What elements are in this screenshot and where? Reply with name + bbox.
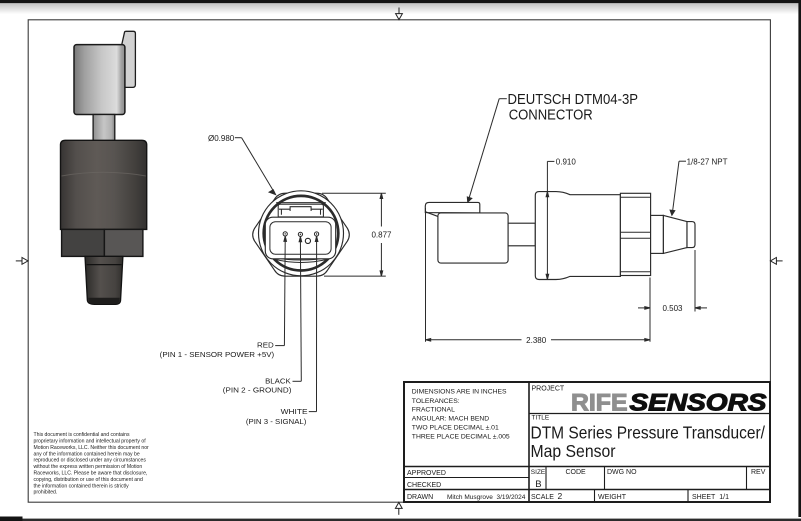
svg-text:SIZE: SIZE bbox=[531, 469, 546, 476]
svg-text:SHEET 1/1: SHEET 1/1 bbox=[692, 494, 729, 501]
svg-text:(PIN 1 - SENSOR POWER +5V): (PIN 1 - SENSOR POWER +5V) bbox=[160, 350, 275, 359]
svg-text:2.380: 2.380 bbox=[526, 336, 547, 345]
svg-text:(PIN 2 - GROUND): (PIN 2 - GROUND) bbox=[223, 386, 292, 395]
svg-text:APPROVED: APPROVED bbox=[407, 470, 446, 477]
svg-text:TITLE: TITLE bbox=[532, 414, 550, 421]
svg-text:WHITE: WHITE bbox=[281, 407, 308, 416]
svg-text:TWO PLACE DECIMAL ±.01: TWO PLACE DECIMAL ±.01 bbox=[412, 425, 499, 432]
svg-text:SENSORS: SENSORS bbox=[630, 390, 768, 417]
svg-text:1/8-27 NPT: 1/8-27 NPT bbox=[687, 157, 728, 166]
svg-text:THREE PLACE DECIMAL ±.005: THREE PLACE DECIMAL ±.005 bbox=[412, 433, 510, 440]
svg-text:RIFE: RIFE bbox=[571, 390, 628, 417]
svg-text:2: 2 bbox=[558, 491, 563, 501]
svg-text:the information contained ther: the information contained therein is str… bbox=[34, 483, 130, 489]
svg-text:FRACTIONAL: FRACTIONAL bbox=[412, 406, 455, 413]
svg-text:DIMENSIONS ARE IN INCHES: DIMENSIONS ARE IN INCHES bbox=[412, 389, 507, 396]
svg-text:proprietary information and in: proprietary information and intellectual… bbox=[34, 439, 147, 445]
svg-text:WEIGHT: WEIGHT bbox=[598, 494, 627, 501]
svg-text:prohibited.: prohibited. bbox=[34, 490, 58, 496]
svg-text:any of the information contain: any of the information contained herein … bbox=[34, 451, 140, 457]
svg-text:without the express written pe: without the express written permission o… bbox=[34, 464, 143, 470]
svg-text:Motion Raceworks, LLC. Neither: Motion Raceworks, LLC. Neither this docu… bbox=[34, 445, 150, 451]
svg-text:TOLERANCES:: TOLERANCES: bbox=[412, 398, 460, 405]
svg-text:CHECKED: CHECKED bbox=[407, 482, 441, 489]
svg-text:CODE: CODE bbox=[566, 469, 587, 476]
svg-text:REV: REV bbox=[751, 469, 766, 476]
svg-text:SCALE: SCALE bbox=[531, 494, 554, 501]
svg-text:This document is confidential: This document is confidential and contai… bbox=[34, 432, 130, 438]
svg-text:Mitch Musgrove 3/19/2024: Mitch Musgrove 3/19/2024 bbox=[447, 494, 526, 501]
svg-text:DWG NO: DWG NO bbox=[607, 469, 637, 476]
svg-text:PROJECT: PROJECT bbox=[532, 386, 565, 393]
svg-text:DEUTSCH DTM04-3P: DEUTSCH DTM04-3P bbox=[508, 92, 639, 108]
svg-text:ANGULAR: MACH BEND: ANGULAR: MACH BEND bbox=[412, 416, 490, 423]
svg-text:DTM Series Pressure Transducer: DTM Series Pressure Transducer/ bbox=[531, 423, 766, 443]
svg-text:Ø0.980: Ø0.980 bbox=[208, 134, 235, 143]
svg-text:0.877: 0.877 bbox=[371, 231, 392, 240]
svg-text:0.910: 0.910 bbox=[556, 157, 577, 166]
svg-text:(PIN 3 - SIGNAL): (PIN 3 - SIGNAL) bbox=[246, 417, 307, 426]
svg-text:B: B bbox=[535, 479, 541, 490]
svg-text:Map Sensor: Map Sensor bbox=[531, 441, 616, 461]
svg-text:copying, distribution or use o: copying, distribution or use of this doc… bbox=[34, 477, 143, 483]
svg-text:DRAWN: DRAWN bbox=[407, 494, 433, 501]
svg-text:Raceworks, LLC. Please be awar: Raceworks, LLC. Please be aware that dis… bbox=[34, 471, 148, 477]
svg-text:reproduced or disclosed under: reproduced or disclosed under any circum… bbox=[34, 458, 147, 464]
svg-text:CONNECTOR: CONNECTOR bbox=[509, 108, 593, 124]
svg-text:0.503: 0.503 bbox=[662, 304, 683, 313]
svg-text:BLACK: BLACK bbox=[265, 377, 291, 386]
svg-text:RED: RED bbox=[257, 341, 274, 350]
